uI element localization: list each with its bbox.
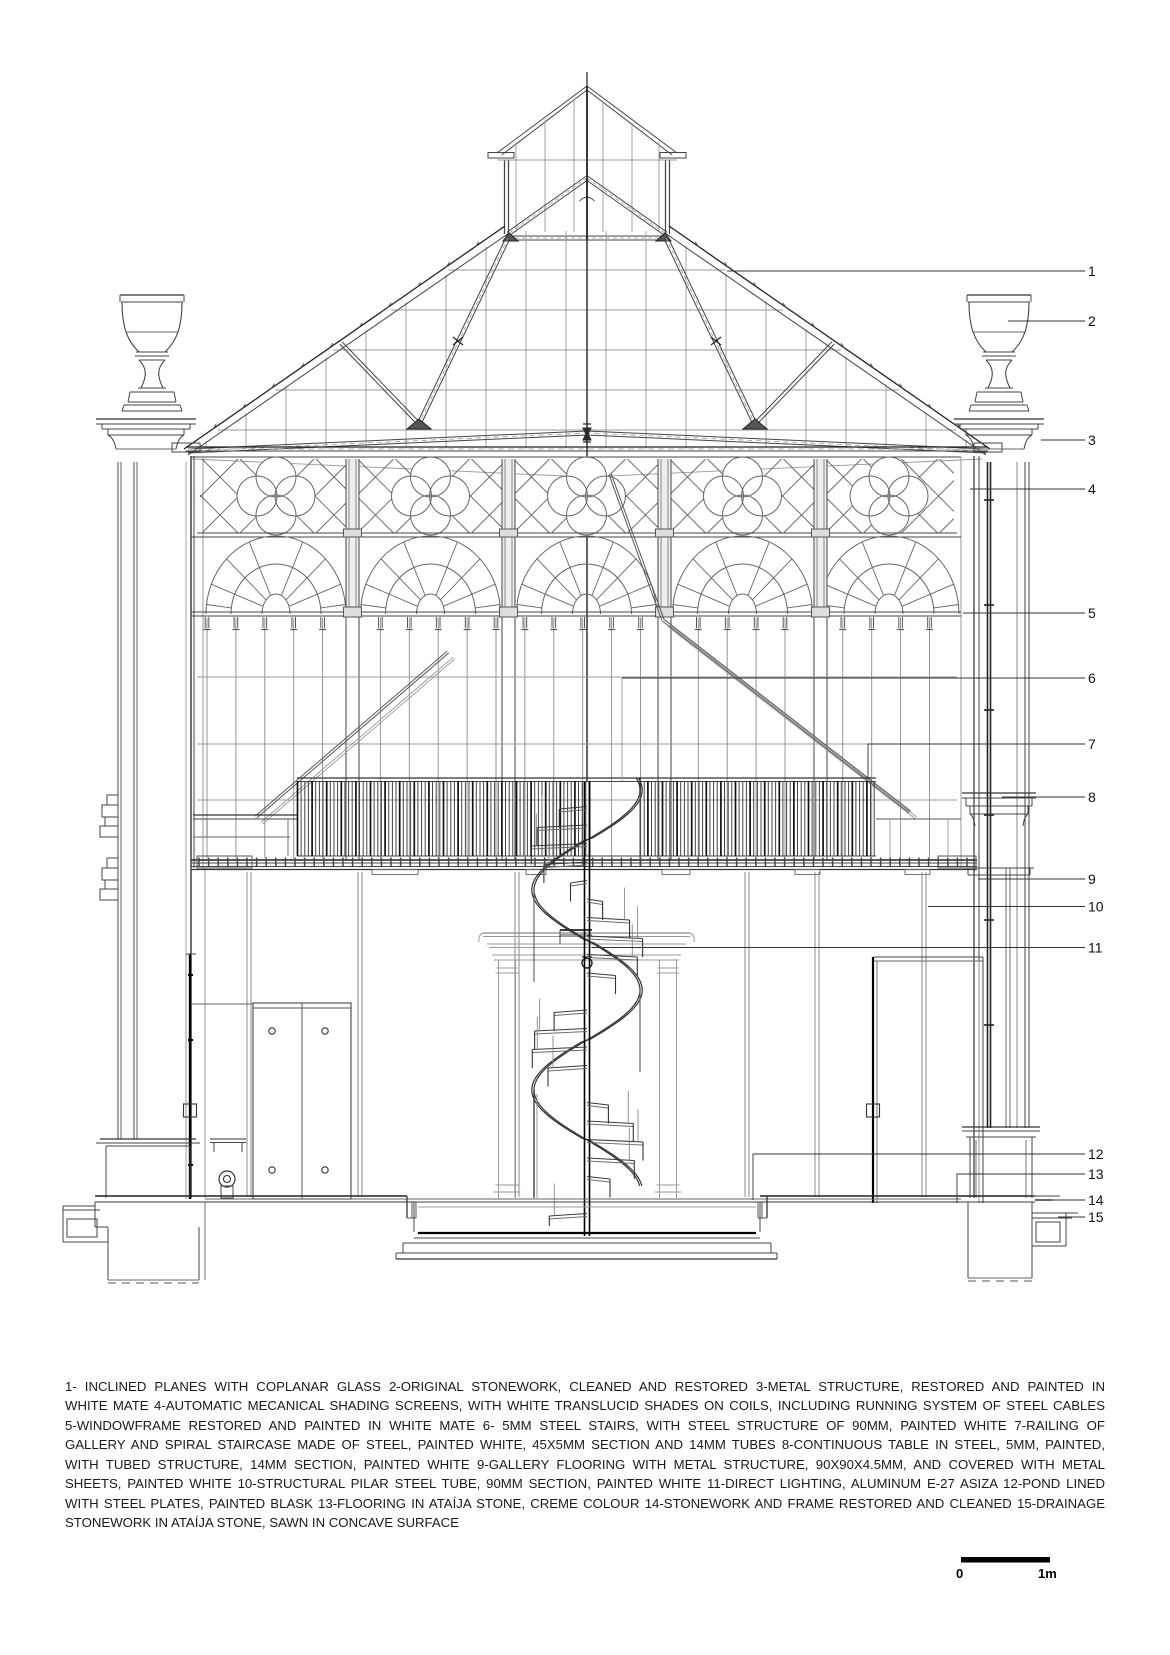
svg-text:14: 14 <box>1088 1192 1104 1208</box>
svg-text:11: 11 <box>1088 940 1103 956</box>
svg-text:15: 15 <box>1088 1209 1104 1225</box>
svg-text:13: 13 <box>1088 1166 1104 1182</box>
svg-text:10: 10 <box>1088 899 1104 915</box>
svg-text:7: 7 <box>1088 736 1096 752</box>
svg-text:0: 0 <box>956 1566 963 1581</box>
svg-text:4: 4 <box>1088 481 1096 497</box>
svg-text:8: 8 <box>1088 789 1096 805</box>
svg-text:3: 3 <box>1088 432 1096 448</box>
svg-text:9: 9 <box>1088 871 1096 887</box>
svg-text:1m: 1m <box>1038 1566 1057 1581</box>
svg-text:5: 5 <box>1088 605 1096 621</box>
svg-text:2: 2 <box>1088 313 1096 329</box>
svg-text:6: 6 <box>1088 670 1096 686</box>
svg-text:1: 1 <box>1088 263 1096 279</box>
svg-text:12: 12 <box>1088 1146 1104 1162</box>
